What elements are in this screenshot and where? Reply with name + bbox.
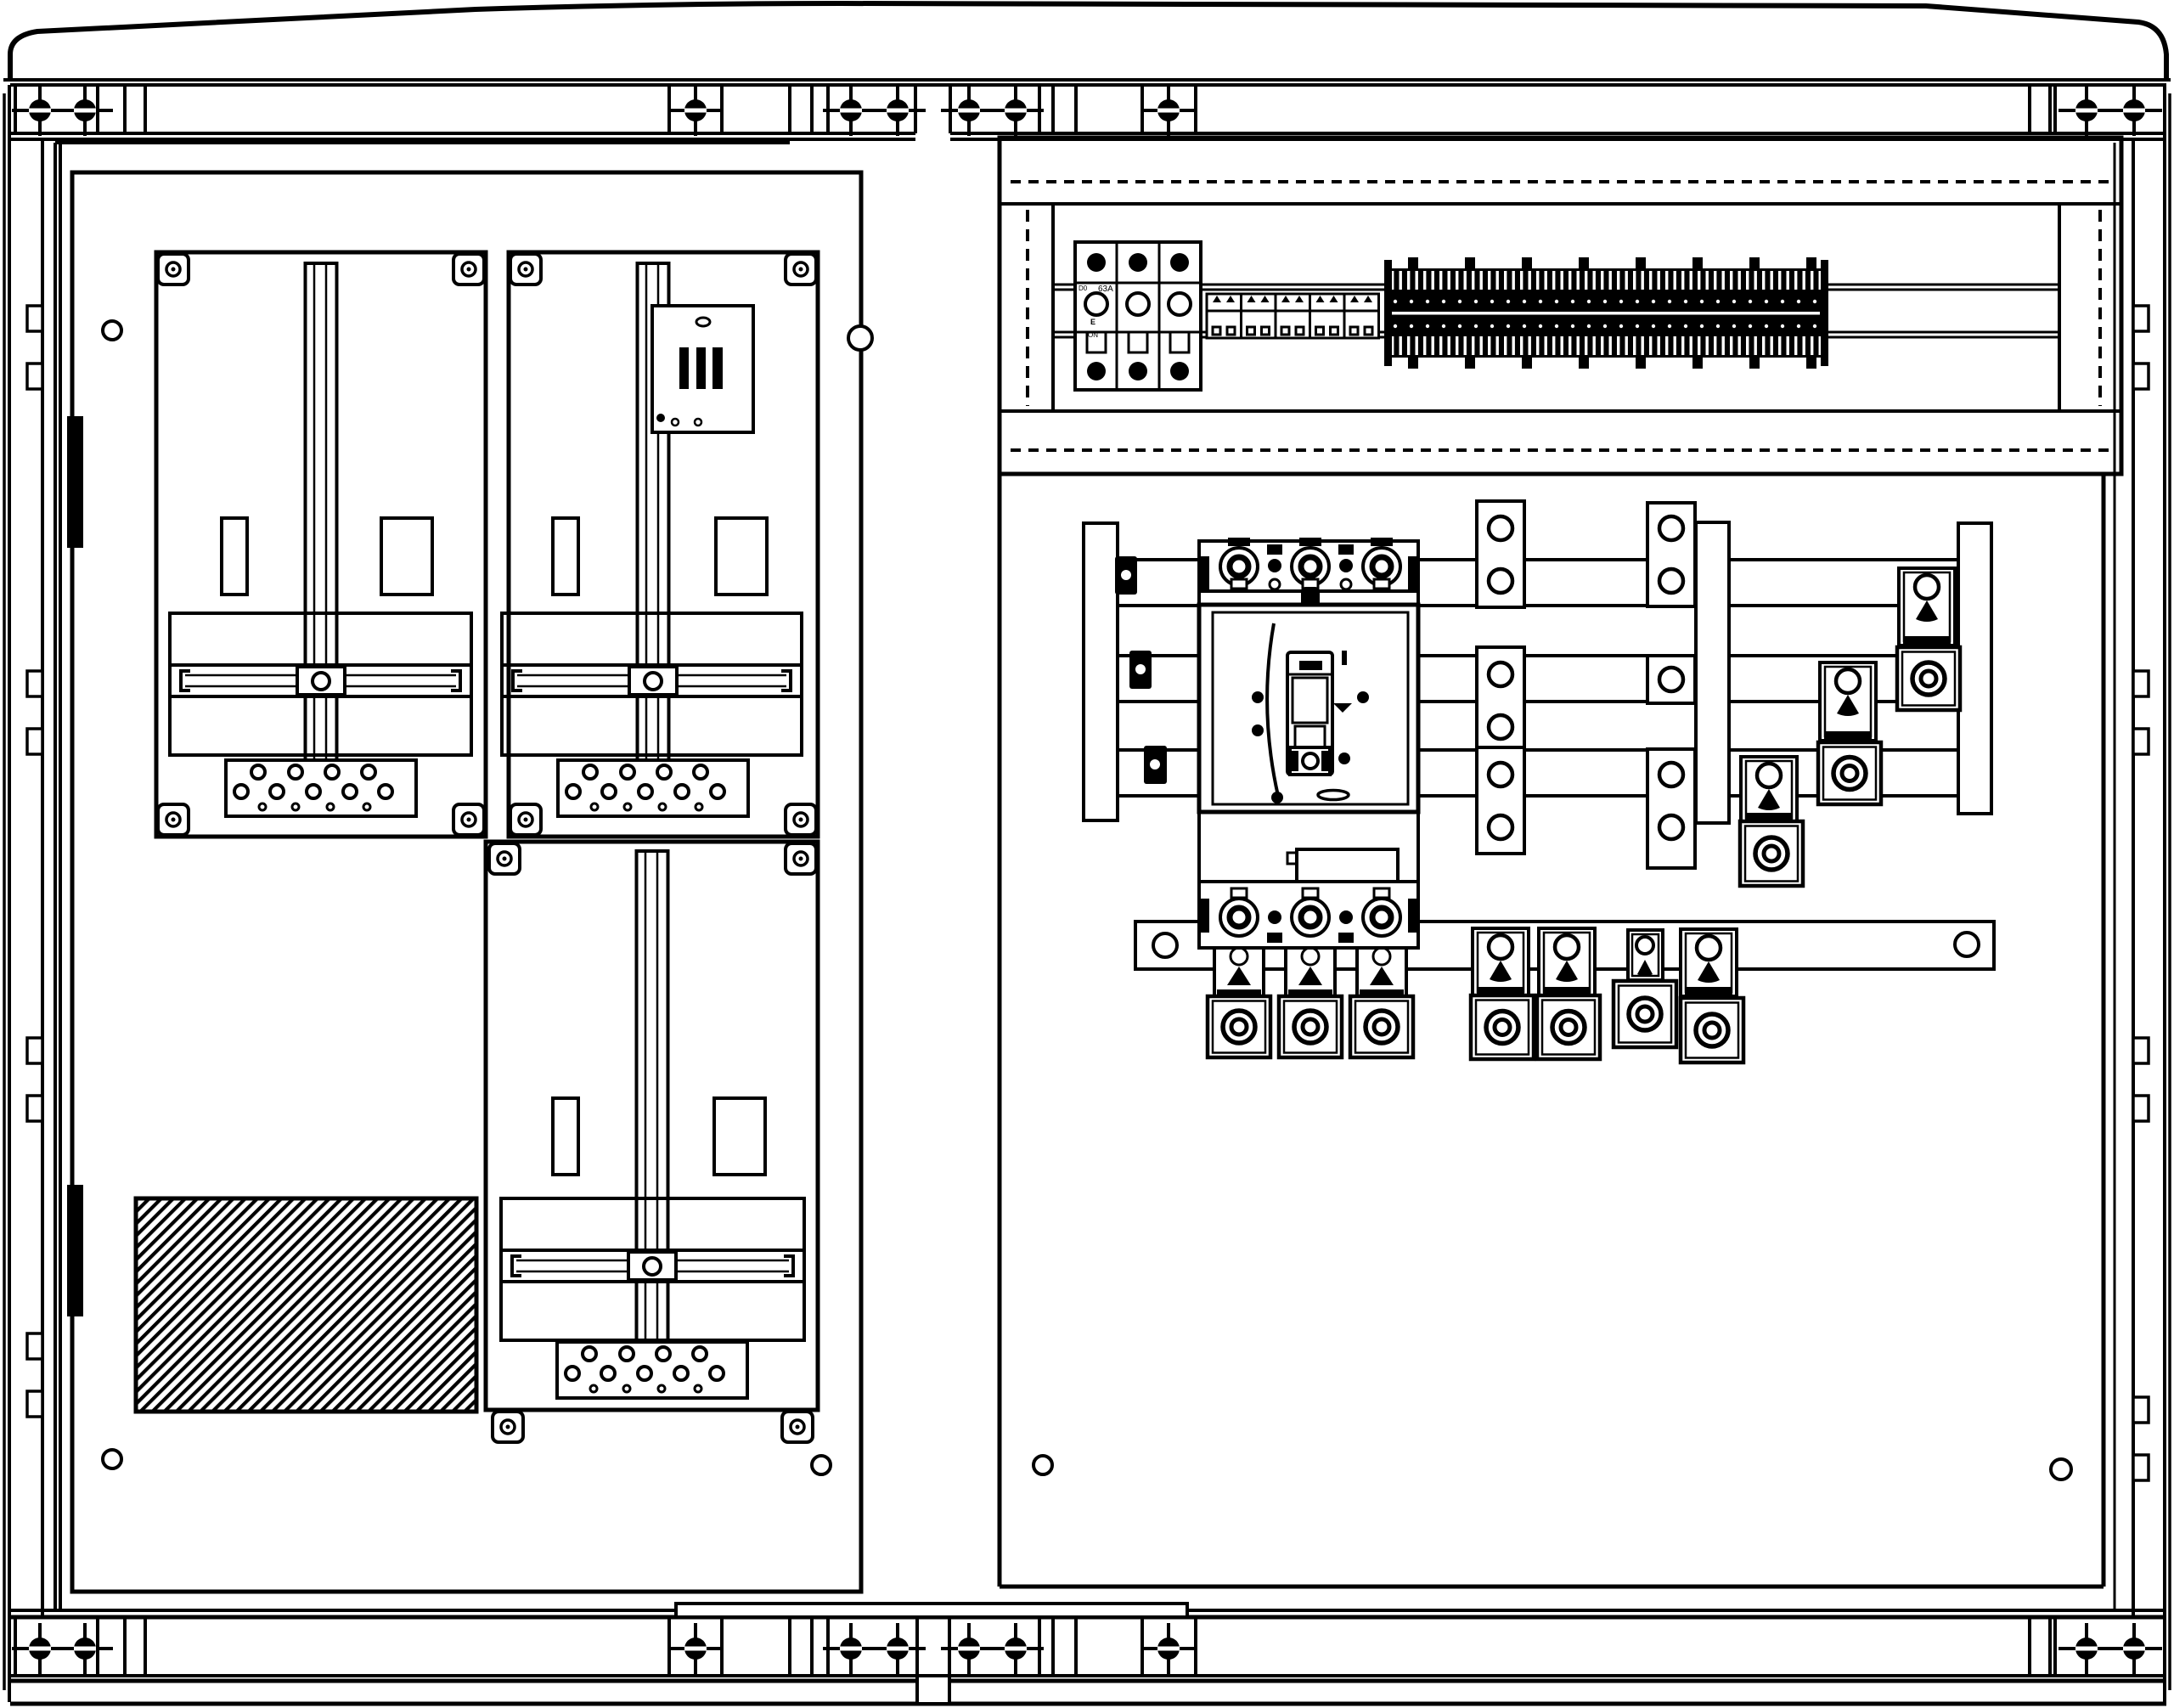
svg-text:63A: 63A xyxy=(1098,285,1113,294)
svg-text:ON: ON xyxy=(1088,331,1098,339)
svg-text:E: E xyxy=(1090,318,1095,326)
svg-text:D0: D0 xyxy=(1079,285,1088,292)
